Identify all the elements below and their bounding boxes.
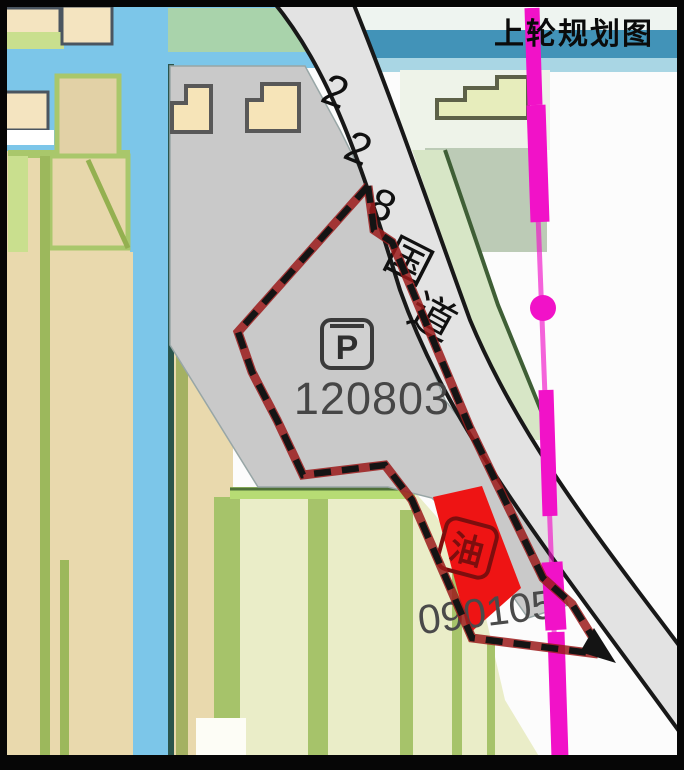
white-patch xyxy=(196,718,246,758)
olive-strip xyxy=(176,332,188,758)
map-title: 上轮规划图 xyxy=(494,18,654,51)
canal xyxy=(133,250,173,758)
parking-symbol: P xyxy=(322,320,372,368)
parking-parcel-code: 120803 xyxy=(294,373,450,424)
planning-map-canvas[interactable]: 油 120803 090105 P 2 2 8 国 道 上轮规划图 xyxy=(0,0,684,770)
parking-glyph: P xyxy=(336,329,359,367)
planning-map: 油 120803 090105 P 2 2 8 国 道 上轮规划图 xyxy=(0,0,684,770)
magenta-node-dot xyxy=(530,295,556,321)
